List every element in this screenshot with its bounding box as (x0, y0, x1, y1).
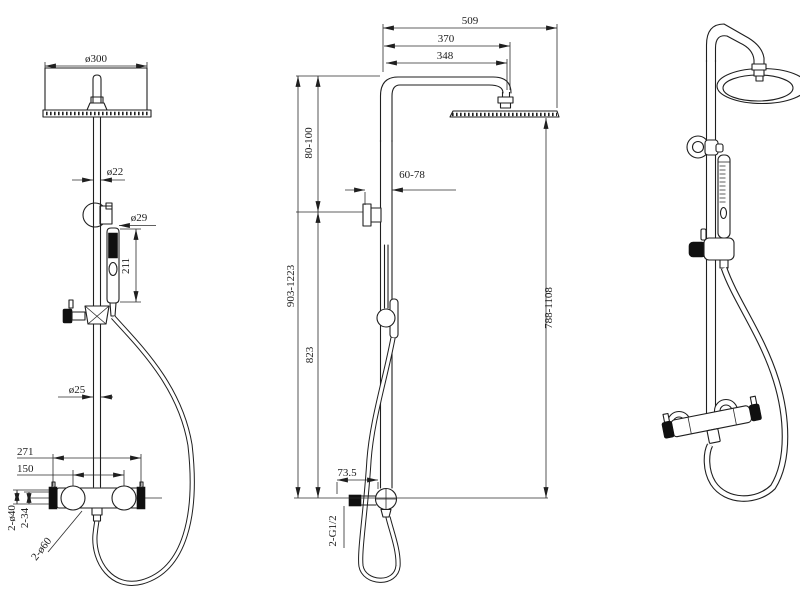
front-wall-bracket (83, 203, 112, 227)
dim-lower-pipe-label: ø25 (69, 384, 86, 396)
dim-valve-centers-label: 150 (17, 463, 34, 475)
side-mixer-valve (349, 489, 397, 518)
dim-head-to-valve-height-label: 788-1108 (543, 287, 555, 329)
front-slider-clamp (63, 300, 109, 324)
dim-flange-depth: 2-34 (19, 492, 31, 528)
front-bracket-clamp (100, 203, 112, 224)
dim-top-to-bracket: 80-100 (303, 76, 318, 212)
dim-valve-width-label: 271 (17, 446, 34, 458)
front-slider-knob (63, 309, 72, 323)
dim-valve-centers: 150 (17, 463, 124, 475)
iso-hose-outer (707, 268, 785, 499)
front-valve-cap-pins (52, 482, 143, 487)
front-valve-left-knob (61, 486, 85, 510)
side-valve-outlet (381, 510, 391, 518)
front-extension-lines (13, 62, 147, 504)
iso-shower-arm (707, 24, 765, 66)
front-valve-right-knob (112, 486, 136, 510)
dim-outlet-offset: 73.5 (337, 467, 378, 480)
iso-valve-outlet (707, 429, 720, 444)
front-hose-inner (95, 317, 192, 583)
dim-overall-projection: 509 (383, 15, 557, 28)
front-hand-shower (107, 228, 119, 316)
dim-wall-flange-label: 2-ø40 (6, 505, 18, 531)
front-hose-outer (95, 317, 192, 583)
front-handle-spray-face (109, 233, 118, 258)
dim-overall-height: 903-1223 (285, 76, 298, 498)
dim-overall-projection-label: 509 (462, 15, 479, 27)
dim-head-to-valve-height: 788-1108 (543, 118, 555, 498)
iso-wall-bracket (687, 136, 723, 158)
front-handle-hose-nut (110, 303, 116, 316)
dim-handle-diameter-leader (48, 511, 82, 552)
dim-handshower-diameter: ø29 (119, 212, 156, 226)
dim-head-diameter-label: ø300 (85, 53, 108, 65)
iso-valve-pin-left (663, 413, 669, 422)
dim-inlet-thread-label: 2-G1/2 (327, 515, 339, 546)
dim-arm-projection: 370 (384, 33, 510, 46)
side-arm-ball-joint (498, 92, 513, 108)
dim-outlet-offset-label: 73.5 (337, 467, 357, 479)
front-view: ø300 ø22 ø29 211 ø25 271 150 (6, 53, 192, 583)
iso-handle-body (718, 155, 730, 238)
side-slider-knob (377, 309, 395, 327)
dim-overall-height-label: 903-1223 (285, 264, 297, 307)
front-shower-hose (92, 317, 192, 583)
dim-bracket-to-valve-label: 823 (304, 346, 316, 363)
dim-valve-width: 271 (17, 446, 141, 458)
front-overhead-shower (43, 68, 151, 117)
dim-head-diameter: ø300 (45, 53, 147, 66)
iso-hose-inner (707, 268, 785, 499)
front-slider-stem (72, 312, 85, 320)
dim-wall-to-pipe: 60-78 (345, 169, 456, 190)
side-view: 509 370 348 80-100 823 903-1223 60-78 (285, 15, 559, 580)
iso-shower-hose (707, 268, 785, 499)
dim-handshower-length: 211 (120, 229, 136, 302)
front-mixer-valve (30, 482, 162, 510)
isometric-view (660, 24, 800, 499)
side-extension-lines (296, 24, 557, 548)
dim-upper-pipe-label: ø22 (107, 166, 124, 178)
dim-upper-pipe: ø22 (72, 166, 125, 180)
front-valve-outlet (92, 508, 102, 515)
iso-hand-shower (718, 155, 730, 238)
dim-arm-length-label: 348 (437, 50, 454, 62)
iso-hose-nut (720, 260, 728, 268)
dim-lower-pipe: ø25 (58, 384, 113, 397)
front-slider-pin (69, 300, 73, 308)
dim-top-to-bracket-label: 80-100 (303, 127, 315, 159)
dim-bracket-to-valve: 823 (304, 212, 318, 498)
dim-handshower-diameter-label: ø29 (131, 212, 148, 224)
dim-handshower-length-label: 211 (120, 258, 132, 274)
dim-arm-length: 348 (386, 50, 507, 63)
front-riser-pipe (94, 117, 101, 487)
iso-mixer-valve (660, 396, 764, 452)
iso-bracket-pin (716, 144, 723, 152)
side-wall-bracket (363, 204, 381, 226)
shower-system-drawing: ø300 ø22 ø29 211 ø25 271 150 (0, 0, 800, 596)
front-head-connector (87, 75, 107, 110)
iso-valve-pin-right (750, 396, 756, 405)
dim-flange-depth-label: 2-34 (19, 507, 31, 528)
dim-inlet-thread: 2-G1/2 (327, 515, 339, 546)
side-wall-union (349, 495, 361, 506)
dim-wall-flange: 2-ø40 (6, 490, 18, 531)
technical-drawing-page: ø300 ø22 ø29 211 ø25 271 150 (0, 0, 800, 596)
dim-handle-diameter: 2-ø60 (29, 511, 82, 563)
iso-slider-pin (701, 229, 706, 240)
front-hose-connector (94, 515, 101, 521)
iso-slider-body (704, 238, 734, 260)
iso-valve-rotated-group (660, 396, 764, 452)
side-shower-arm (381, 77, 512, 142)
front-handle-button (109, 263, 117, 276)
dim-arm-projection-label: 370 (438, 33, 455, 45)
dim-wall-to-pipe-label: 60-78 (399, 169, 425, 181)
